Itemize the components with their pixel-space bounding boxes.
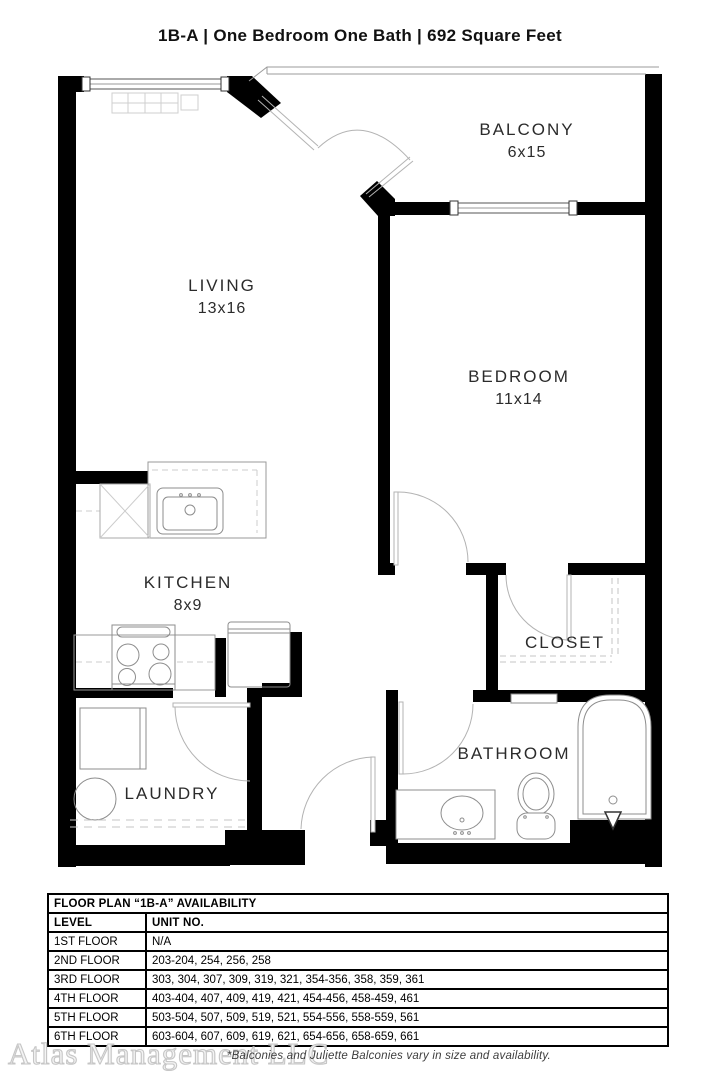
units-cell: N/A [146,932,668,951]
table-row: 5TH FLOOR 503-504, 507, 509, 519, 521, 5… [48,1008,668,1027]
wall-laundry-right [247,688,262,845]
room-dims: 11x14 [468,391,570,409]
wall-bedroom-door-jamb [378,563,395,575]
water-heater [74,778,116,820]
room-name: LIVING [188,276,256,296]
wall-living-bedroom [378,215,390,563]
table-title-row: FLOOR PLAN “1B-A” AVAILABILITY [48,894,668,913]
entry-door [301,757,375,832]
table-row: 1ST FLOOR N/A [48,932,668,951]
bathroom-niche [511,694,557,703]
wall-bottom-bathroom [386,843,575,864]
wall-balcony-door-jamb-upper [227,76,281,118]
kitchen-sink [157,488,223,534]
table-row: 4TH FLOOR 403-404, 407, 409, 419, 421, 4… [48,989,668,1008]
label-living: LIVING 13x16 [188,276,256,318]
label-bathroom: BATHROOM [458,744,571,764]
washer [80,708,146,769]
label-kitchen: KITCHEN 8x9 [144,573,233,615]
balcony-disclaimer: *Balconies and Juliette Balconies vary i… [227,1050,551,1062]
baseboard-heater [112,93,198,113]
room-dims: 8x9 [144,597,233,615]
toilet [517,773,555,839]
room-name: BEDROOM [468,367,570,387]
label-laundry: LAUNDRY [125,784,220,804]
living-window [82,77,229,91]
wall-hall-top [262,683,300,697]
room-name: KITCHEN [144,573,233,593]
level-cell: 5TH FLOOR [48,1008,146,1027]
units-cell: 203-204, 254, 256, 258 [146,951,668,970]
wall-bottom-tub [570,820,662,864]
units-cell: 503-504, 507, 509, 519, 521, 554-556, 55… [146,1008,668,1027]
wall-balcony-bedroom-left [378,202,453,215]
balcony-rail [249,67,659,81]
room-name: LAUNDRY [125,784,220,804]
wall-bottom-entry-left [225,830,305,865]
table-header-row: LEVEL UNIT NO. [48,913,668,932]
level-cell: 2ND FLOOR [48,951,146,970]
dishwasher [100,484,150,538]
availability-table: FLOOR PLAN “1B-A” AVAILABILITY LEVEL UNI… [47,893,669,1047]
room-dims: 13x16 [188,300,256,318]
bathtub [578,695,651,829]
wall-top-left-corner [58,76,84,92]
bedroom-window [450,201,577,215]
units-cell: 303, 304, 307, 309, 319, 321, 354-356, 3… [146,970,668,989]
bathroom-vanity [396,790,495,839]
kitchen-lower-counter [74,635,215,690]
wall-balcony-bedroom-right [574,202,646,215]
wall-kitchen-stub [58,471,148,484]
label-bedroom: BEDROOM 11x14 [468,367,570,409]
label-balcony: BALCONY 6x15 [479,120,574,162]
col-header-level: LEVEL [48,913,146,932]
table-row: 3RD FLOOR 303, 304, 307, 309, 319, 321, … [48,970,668,989]
units-cell: 403-404, 407, 409, 419, 421, 454-456, 45… [146,989,668,1008]
level-cell: 1ST FLOOR [48,932,146,951]
level-cell: 4TH FLOOR [48,989,146,1008]
laundry-door [173,703,250,781]
floorplan-page: 1B-A | One Bedroom One Bath | 692 Square… [0,0,720,1080]
level-cell: 3RD FLOOR [48,970,146,989]
label-closet: CLOSET [525,633,605,653]
table-row: 2ND FLOOR 203-204, 254, 256, 258 [48,951,668,970]
wall-hall-closet [486,573,498,690]
walls [58,74,662,867]
table-title: FLOOR PLAN “1B-A” AVAILABILITY [48,894,668,913]
room-name: BALCONY [479,120,574,140]
bedroom-door [394,492,468,565]
wall-bedroom-closet-right [568,563,646,575]
closet-door [506,575,571,640]
room-name: BATHROOM [458,744,571,764]
wall-counter-fridge-stub [215,638,226,697]
col-header-units: UNIT NO. [146,913,668,932]
refrigerator [228,622,290,687]
balcony-door [258,96,413,197]
room-dims: 6x15 [479,144,574,162]
room-name: CLOSET [525,633,605,653]
laundry-shelf-dashes [70,820,245,827]
wall-bottom-laundry [58,845,230,866]
